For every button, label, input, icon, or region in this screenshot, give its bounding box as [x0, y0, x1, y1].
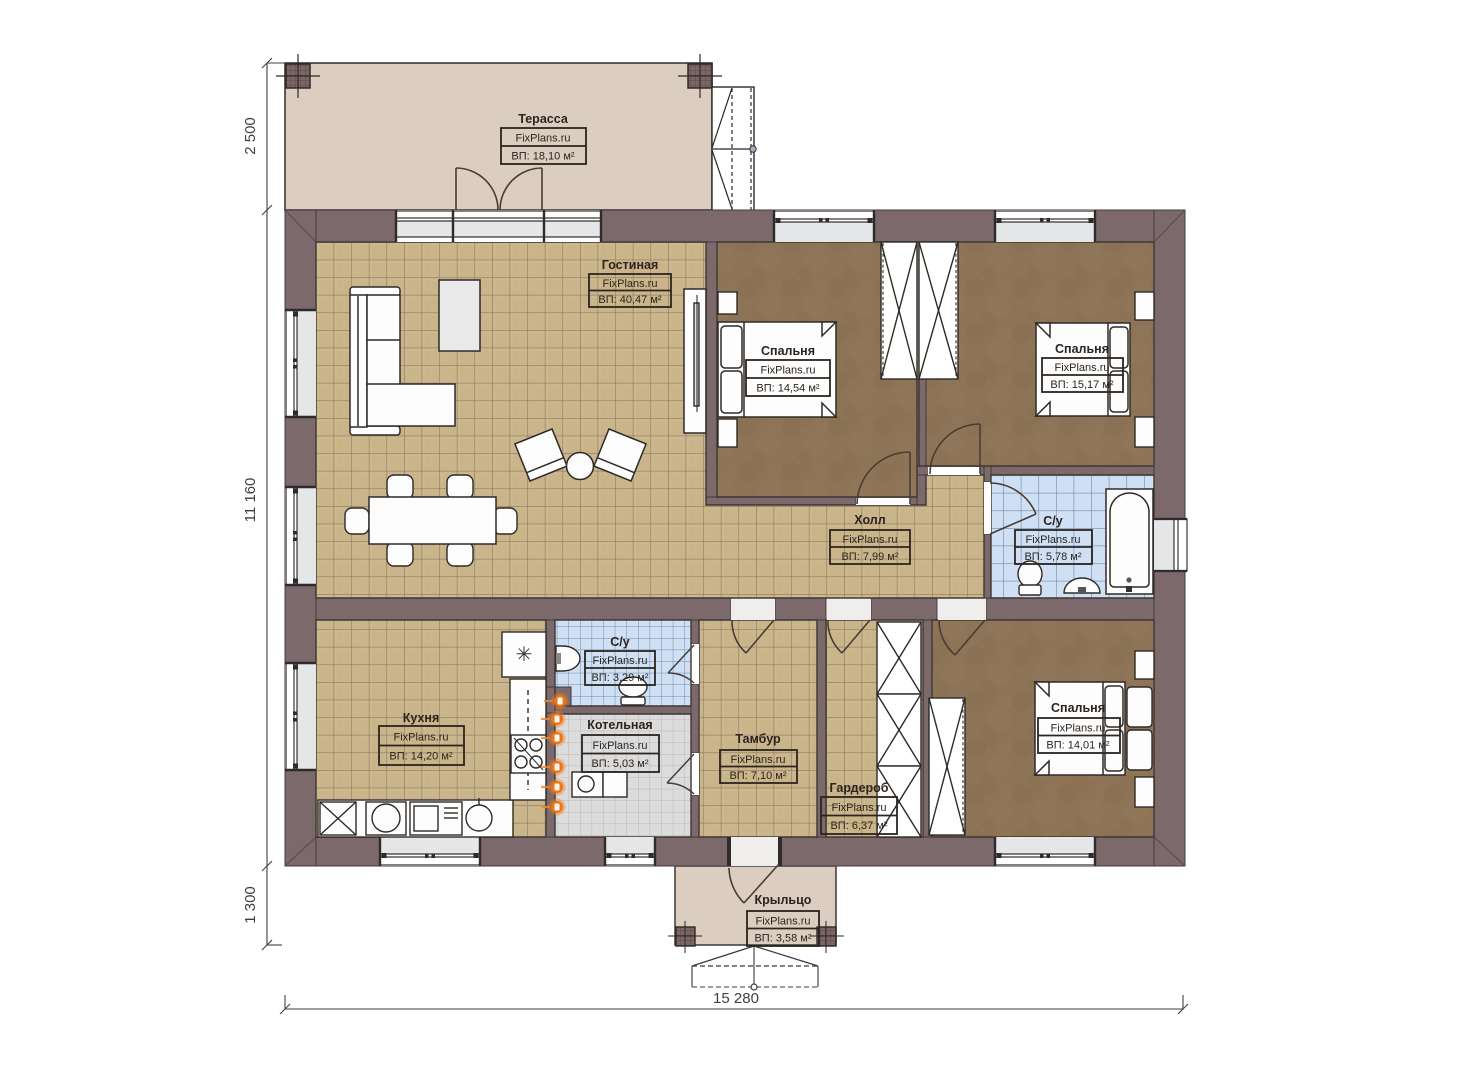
svg-text:FixPlans.ru: FixPlans.ru [393, 732, 448, 744]
svg-text:Гостиная: Гостиная [602, 258, 659, 272]
svg-text:FixPlans.ru: FixPlans.ru [842, 534, 897, 546]
svg-text:С/у: С/у [1043, 514, 1063, 528]
svg-text:11 160: 11 160 [242, 478, 259, 523]
svg-text:Кухня: Кухня [403, 711, 440, 725]
svg-text:FixPlans.ru: FixPlans.ru [1050, 722, 1105, 734]
svg-text:ВП: 3,29 м²: ВП: 3,29 м² [591, 672, 648, 684]
svg-text:FixPlans.ru: FixPlans.ru [1054, 362, 1109, 374]
svg-text:✳: ✳ [516, 644, 533, 666]
svg-text:ВП: 14,01 м²: ВП: 14,01 м² [1046, 740, 1110, 752]
svg-text:Холл: Холл [854, 513, 885, 527]
svg-text:ВП: 3,58 м²: ВП: 3,58 м² [754, 933, 811, 945]
svg-text:ВП: 5,03 м²: ВП: 5,03 м² [591, 758, 648, 770]
svg-text:FixPlans.ru: FixPlans.ru [755, 915, 810, 927]
svg-text:Крыльцо: Крыльцо [755, 893, 812, 907]
svg-text:Тамбур: Тамбур [735, 732, 781, 746]
svg-text:ВП: 40,47 м²: ВП: 40,47 м² [598, 294, 662, 306]
svg-text:FixPlans.ru: FixPlans.ru [592, 740, 647, 752]
svg-text:FixPlans.ru: FixPlans.ru [760, 365, 815, 377]
svg-text:ВП: 5,78 м²: ВП: 5,78 м² [1024, 551, 1081, 563]
svg-text:ВП: 7,99 м²: ВП: 7,99 м² [841, 551, 898, 563]
svg-text:2 500: 2 500 [242, 117, 259, 155]
svg-text:ВП: 18,10 м²: ВП: 18,10 м² [511, 150, 575, 162]
svg-text:Спальня: Спальня [1055, 342, 1109, 356]
svg-text:Гардероб: Гардероб [829, 781, 888, 795]
svg-text:ВП: 14,20 м²: ВП: 14,20 м² [389, 751, 453, 763]
svg-text:Терасса: Терасса [518, 112, 569, 126]
svg-text:С/у: С/у [610, 635, 630, 649]
svg-text:Котельная: Котельная [587, 718, 652, 732]
svg-text:FixPlans.ru: FixPlans.ru [592, 655, 647, 667]
svg-text:15 280: 15 280 [713, 990, 759, 1007]
svg-text:1 300: 1 300 [242, 886, 259, 924]
svg-text:ВП: 15,17 м²: ВП: 15,17 м² [1050, 379, 1114, 391]
svg-text:ВП: 6,37 м²: ВП: 6,37 м² [830, 820, 887, 832]
svg-text:FixPlans.ru: FixPlans.ru [1025, 534, 1080, 546]
svg-text:Спальня: Спальня [1051, 701, 1105, 715]
svg-text:ВП: 7,10 м²: ВП: 7,10 м² [729, 770, 786, 782]
svg-text:FixPlans.ru: FixPlans.ru [831, 802, 886, 814]
svg-text:FixPlans.ru: FixPlans.ru [730, 754, 785, 766]
svg-text:FixPlans.ru: FixPlans.ru [602, 278, 657, 290]
svg-text:FixPlans.ru: FixPlans.ru [515, 133, 570, 145]
svg-text:ВП: 14,54 м²: ВП: 14,54 м² [756, 382, 820, 394]
svg-text:Спальня: Спальня [761, 344, 815, 358]
